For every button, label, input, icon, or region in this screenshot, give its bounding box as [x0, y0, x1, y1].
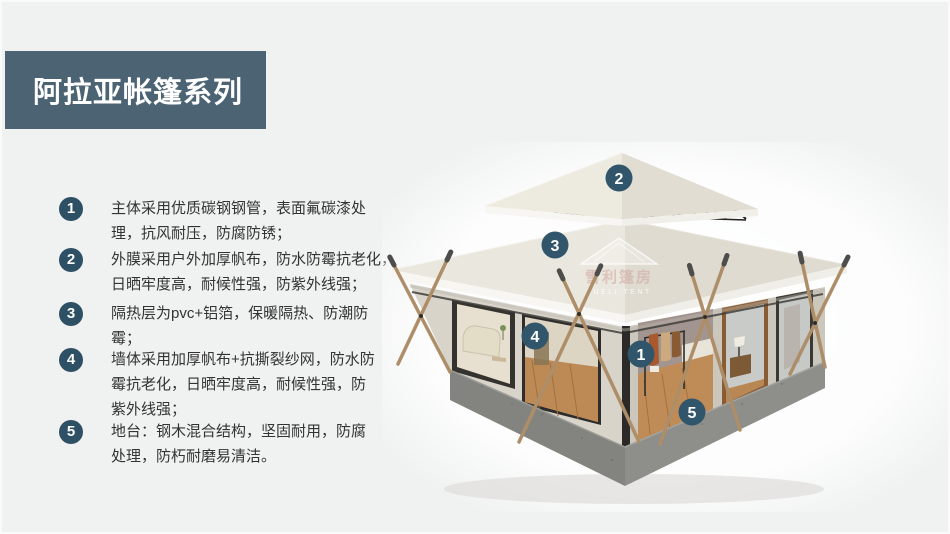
marker-5: 5 [679, 399, 706, 426]
feature-number-badge: 3 [59, 302, 83, 326]
feature-item-5: 5 地台：钢木混合结构，坚固耐用，防腐 处理，防朽耐磨易清洁。 [59, 419, 411, 469]
feature-item-2: 2 外膜采用户外加厚帆布，防水防霉抗老化， 日晒牢度高，耐候性强，防紫外线强； [59, 247, 411, 297]
watermark-en: XUELI TENT [586, 289, 651, 296]
svg-text:4: 4 [531, 329, 540, 346]
page-title: 阿拉亚帐篷系列 [33, 69, 243, 111]
header-banner: 阿拉亚帐篷系列 [5, 51, 266, 129]
corner-post [622, 326, 630, 450]
feature-number-badge: 5 [59, 420, 83, 444]
feature-text: 外膜采用户外加厚帆布，防水防霉抗老化， 日晒牢度高，耐候性强，防紫外线强； [111, 247, 396, 297]
feature-item-1: 1 主体采用优质碳钢钢管，表面氟碳漆处 理，抗风耐压，防腐防锈； [59, 196, 411, 246]
feature-item-3: 3 隔热层为pvc+铝箔，保暖隔热、防潮防 霉； [59, 301, 411, 351]
feature-text: 墙体采用加厚帆布+抗撕裂纱网，防水防 霉抗老化，日晒牢度高，耐候性强，防 紫外线… [111, 347, 375, 422]
feature-number-badge: 4 [59, 348, 83, 372]
svg-text:1: 1 [637, 347, 646, 364]
tent-illustration: 雪利篷房 XUELI TENT [382, 142, 950, 512]
svg-text:5: 5 [688, 405, 697, 422]
feature-number-badge: 1 [59, 197, 83, 221]
feature-text: 隔热层为pvc+铝箔，保暖隔热、防潮防 霉； [111, 301, 368, 351]
svg-text:3: 3 [551, 238, 560, 255]
svg-text:2: 2 [615, 171, 624, 188]
slide: 阿拉亚帐篷系列 1 主体采用优质碳钢钢管，表面氟碳漆处 理，抗风耐压，防腐防锈；… [0, 0, 950, 534]
marker-3: 3 [542, 232, 569, 259]
plant [500, 325, 506, 331]
feature-text: 地台：钢木混合结构，坚固耐用，防腐 处理，防朽耐磨易清洁。 [111, 419, 366, 469]
marker-1: 1 [628, 341, 655, 368]
feature-item-4: 4 墙体采用加厚帆布+抗撕裂纱网，防水防 霉抗老化，日晒牢度高，耐候性强，防 紫… [59, 347, 411, 422]
marker-2: 2 [606, 165, 633, 192]
feature-number-badge: 2 [59, 248, 83, 272]
feature-text: 主体采用优质碳钢钢管，表面氟碳漆处 理，抗风耐压，防腐防锈； [111, 196, 366, 246]
marker-4: 4 [522, 323, 549, 350]
